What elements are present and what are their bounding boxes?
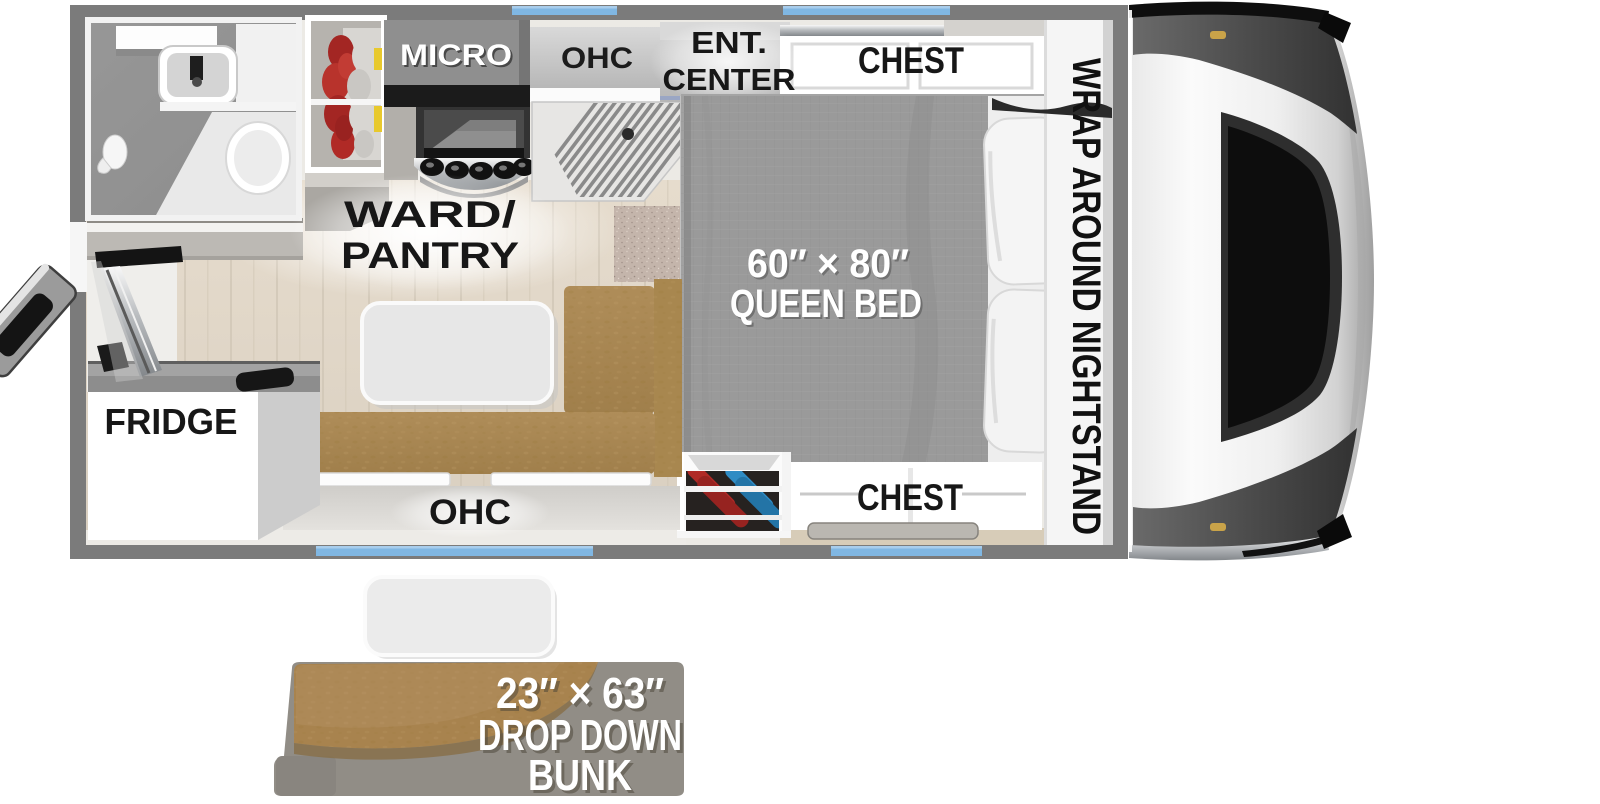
svg-text:FRIDGE: FRIDGE (105, 401, 238, 442)
svg-text:QUEEN BED: QUEEN BED (730, 282, 922, 326)
svg-text:CHEST: CHEST (857, 477, 963, 518)
svg-text:CHEST: CHEST (858, 40, 964, 81)
svg-text:ENT.: ENT. (691, 25, 767, 60)
svg-text:OHC: OHC (561, 42, 633, 75)
svg-text:WARD/: WARD/ (344, 194, 516, 235)
svg-text:BUNK: BUNK (528, 751, 632, 800)
svg-text:WRAP AROUND NIGHTSTAND: WRAP AROUND NIGHTSTAND (1064, 58, 1108, 535)
svg-text:PANTRY: PANTRY (341, 235, 519, 276)
svg-text:60″ × 80″: 60″ × 80″ (747, 242, 909, 286)
svg-text:OHC: OHC (429, 493, 511, 532)
svg-text:CENTER: CENTER (663, 62, 796, 97)
svg-text:MICRO: MICRO (400, 39, 512, 72)
